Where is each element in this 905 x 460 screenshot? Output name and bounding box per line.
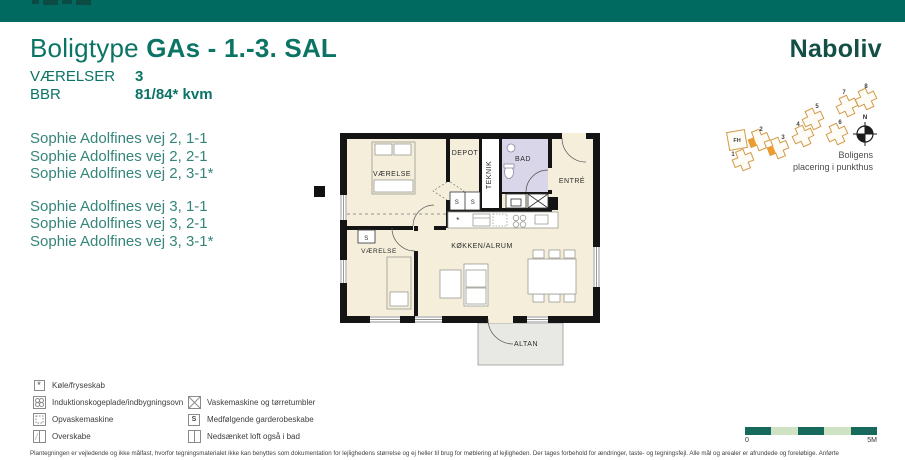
legend-label: Induktionskogeplade/indbygningsovn <box>52 398 183 407</box>
chair <box>533 250 544 258</box>
legend-label: Medfølgende garderobeskabe <box>207 415 314 424</box>
building-7 <box>834 93 861 120</box>
wall-cabinet-icon <box>32 430 46 443</box>
building-1 <box>730 147 756 173</box>
room-label-teknik: TEKNIK <box>486 161 493 189</box>
wardrobe-s-icon: S <box>188 414 200 426</box>
compass-icon: N <box>853 115 877 146</box>
single-bed <box>387 257 411 309</box>
sink-icon <box>535 215 548 224</box>
naboliv-logo: Naboliv <box>760 35 882 64</box>
scale-segment <box>851 427 877 435</box>
fh-label: FH <box>733 138 740 144</box>
room-label-entre: ENTRÉ <box>559 176 585 185</box>
scale-segment <box>745 427 771 435</box>
legend-right-column: Vaskemaskine og tørretumbler S Medfølgen… <box>187 394 315 445</box>
dishwasher-icon <box>32 413 46 426</box>
legend-label: Nedsænket loft også i bad <box>207 432 300 441</box>
induction-hob-icon <box>32 396 46 409</box>
lowered-ceiling-icon <box>187 430 201 443</box>
legend-label: Overskabe <box>52 432 91 441</box>
legend-item: S Medfølgende garderobeskabe <box>187 411 315 428</box>
asterisk-box-icon: * <box>34 380 45 391</box>
washer-dryer-icon <box>187 396 201 409</box>
caption-line: Boligens <box>838 150 873 160</box>
building-number: 3 <box>781 135 785 141</box>
closet-s-label: S <box>364 236 369 242</box>
legend-item: Opvaskemaskine <box>32 411 183 428</box>
legend-label: Køle/fryseskab <box>52 381 105 390</box>
legend-item: Induktionskogeplade/indbygningsovn <box>32 394 183 411</box>
chair <box>549 294 560 302</box>
address-group-2: Sophie Adolfines vej 3, 1-1 Sophie Adolf… <box>30 198 213 251</box>
room-label-depot: DEPOT <box>452 150 479 157</box>
building-number: 8 <box>864 84 868 90</box>
spec-value: 81/84* kvm <box>135 86 213 104</box>
kitchen-counter <box>448 212 558 228</box>
address-line: Sophie Adolfines vej 2, 1-1 <box>30 130 213 148</box>
site-plan: 1 2 3 4 5 6 7 8 FH N Boligens placering … <box>700 80 905 190</box>
caption-line: placering i punkthus <box>793 162 874 172</box>
compass-n-label: N <box>863 115 867 121</box>
scale-segment <box>824 427 850 435</box>
chair <box>549 250 560 258</box>
spec-label: BBR <box>30 86 135 104</box>
dining-table <box>528 259 576 294</box>
partial-text-fragment <box>62 0 72 4</box>
building-6 <box>824 121 851 148</box>
spec-label: VÆRELSER <box>30 68 135 86</box>
chair <box>564 294 575 302</box>
page-title-prefix: Boligtype <box>30 33 139 63</box>
chair <box>564 250 575 258</box>
page-title: Boligtype GAs - 1.-3. SAL <box>30 33 337 64</box>
address-line: Sophie Adolfines vej 3, 3-1* <box>30 233 213 251</box>
address-line: Sophie Adolfines vej 2, 3-1* <box>30 165 213 183</box>
partial-text-fragment <box>76 0 91 5</box>
room-label-vaerelse2: VÆRELSE <box>361 248 397 255</box>
floor-plan: VÆRELSE DEPOT TEKNIK BAD ENTRÉ VÆRELSE K… <box>330 120 670 380</box>
address-line: Sophie Adolfines vej 2, 2-1 <box>30 148 213 166</box>
scale-bar: 0 5M <box>745 427 877 444</box>
dining-set <box>528 250 576 302</box>
window <box>415 316 442 323</box>
top-bar <box>0 0 905 22</box>
window <box>340 195 347 220</box>
closet-s-label: S <box>471 200 476 206</box>
spec-table: VÆRELSER 3 BBR 81/84* kvm <box>30 68 213 104</box>
fridge-asterisk: * <box>456 216 460 225</box>
scale-bar-segments <box>745 427 877 435</box>
address-list: Sophie Adolfines vej 2, 1-1 Sophie Adolf… <box>30 130 213 250</box>
coffee-table <box>440 270 461 298</box>
building-number: 2 <box>759 127 763 133</box>
scale-end-label: 5M <box>867 437 877 444</box>
building-number: 1 <box>731 152 735 158</box>
disclaimer-text: Plantegningen er vejledende og ikke målf… <box>30 450 905 457</box>
legend-label: Vaskemaskine og tørretumbler <box>207 398 315 407</box>
spec-row-bbr: BBR 81/84* kvm <box>30 86 213 104</box>
room-label-koekken: KØKKEN/ALRUM <box>451 243 513 250</box>
legend-item: Vaskemaskine og tørretumbler <box>187 394 315 411</box>
double-bed <box>372 142 415 194</box>
spec-row-rooms: VÆRELSER 3 <box>30 68 213 86</box>
legend-item: Overskabe <box>32 428 183 445</box>
sofa <box>464 264 488 306</box>
room-label-altan: ALTAN <box>514 341 538 348</box>
oven-icon <box>473 214 490 226</box>
floorplan-sheet: Boligtype GAs - 1.-3. SAL VÆRELSER 3 BBR… <box>0 0 905 460</box>
scale-segment <box>771 427 797 435</box>
closet-s-label: S <box>455 200 460 206</box>
site-plan-caption: Boligens placering i punkthus <box>793 150 874 172</box>
building-number: 5 <box>815 104 819 110</box>
black-square-marker <box>314 186 325 197</box>
unit-type-name: GAs - 1.-3. SAL <box>146 33 337 63</box>
window <box>593 247 600 287</box>
chair <box>533 294 544 302</box>
partial-text-fragment <box>32 0 39 4</box>
address-line: Sophie Adolfines vej 3, 1-1 <box>30 198 213 216</box>
legend-left-column: * Køle/fryseskab Induktionskogeplade/ind… <box>32 377 183 445</box>
window <box>340 260 347 283</box>
address-line: Sophie Adolfines vej 3, 2-1 <box>30 215 213 233</box>
partial-text-fragment <box>43 0 58 5</box>
room-label-vaerelse1: VÆRELSE <box>373 171 411 178</box>
scale-start-label: 0 <box>745 437 749 444</box>
legend-item: * Køle/fryseskab <box>32 377 183 394</box>
room-label-bad: BAD <box>515 156 531 163</box>
window <box>527 316 548 323</box>
scale-segment <box>798 427 824 435</box>
spec-value: 3 <box>135 68 143 86</box>
address-group-1: Sophie Adolfines vej 2, 1-1 Sophie Adolf… <box>30 130 213 183</box>
legend-item: Nedsænket loft også i bad <box>187 428 315 445</box>
dishwasher-icon <box>493 214 507 226</box>
legend-label: Opvaskemaskine <box>52 415 113 424</box>
building-number: 6 <box>838 120 842 126</box>
washbasin-icon <box>507 144 515 152</box>
window <box>370 316 400 323</box>
